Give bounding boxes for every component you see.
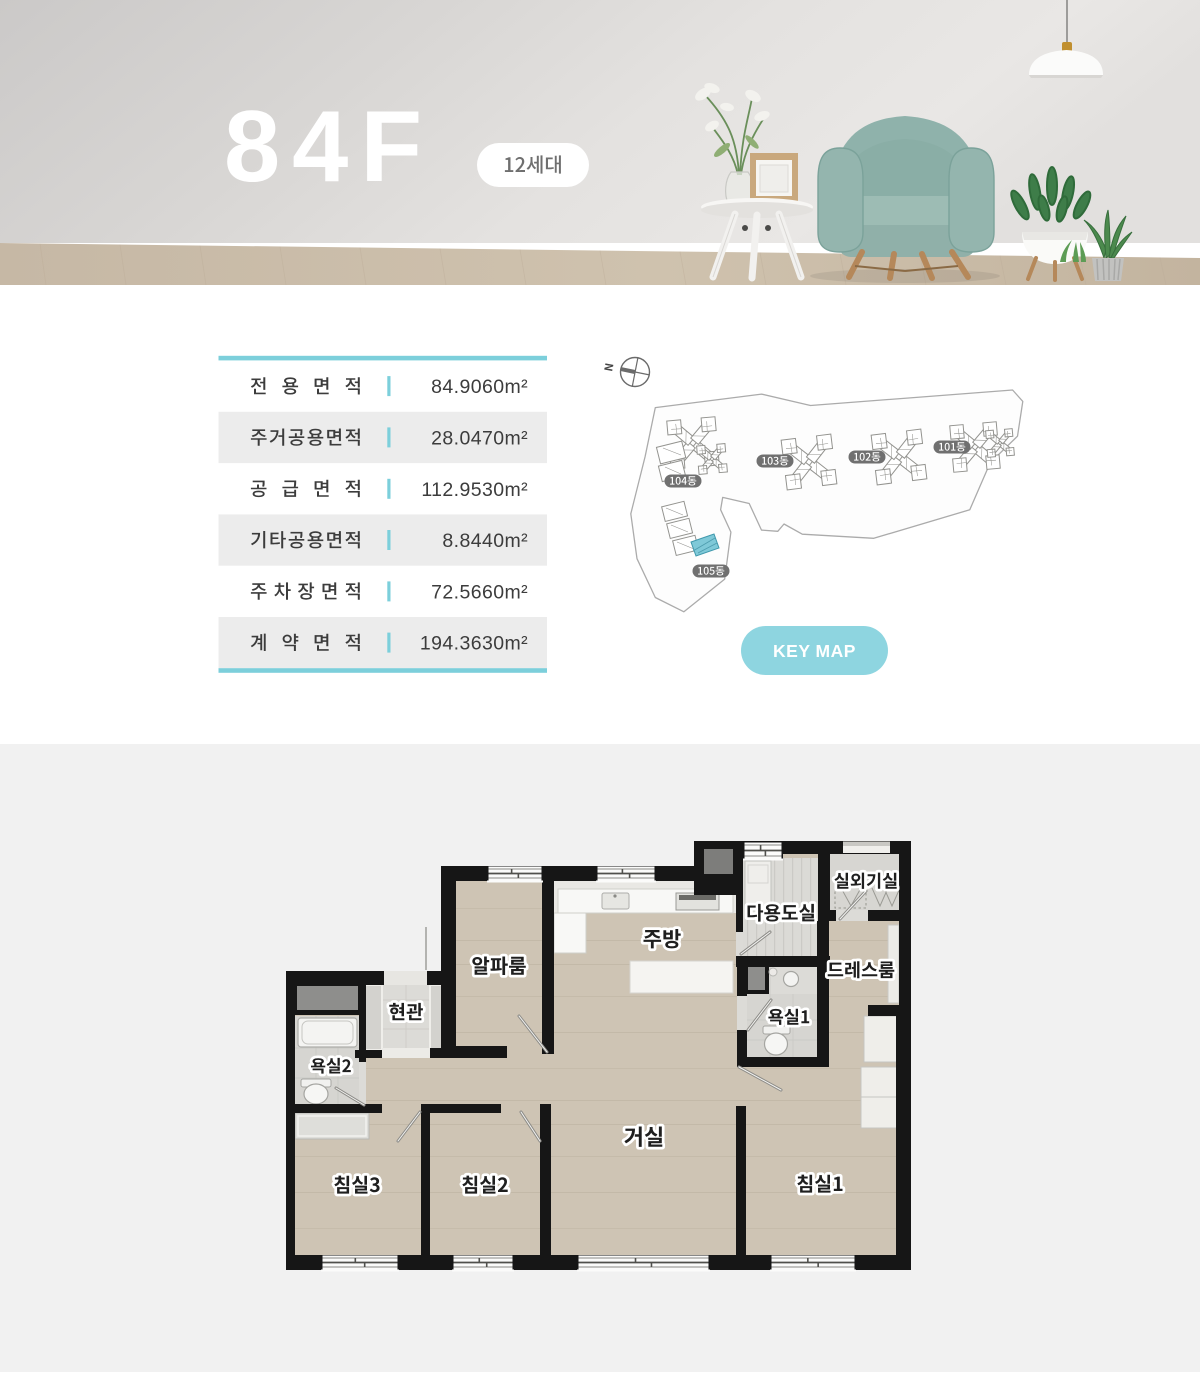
svg-text:84.9060m²: 84.9060m² (431, 376, 528, 398)
svg-text:28.0470m²: 28.0470m² (431, 427, 528, 449)
svg-text:72.5660m²: 72.5660m² (431, 581, 528, 603)
svg-text:KEY MAP: KEY MAP (773, 641, 856, 661)
svg-text:112.9530m²: 112.9530m² (421, 479, 528, 501)
svg-text:84F: 84F (224, 91, 434, 203)
svg-text:194.3630m²: 194.3630m² (420, 633, 528, 655)
svg-text:8.8440m²: 8.8440m² (442, 530, 528, 552)
